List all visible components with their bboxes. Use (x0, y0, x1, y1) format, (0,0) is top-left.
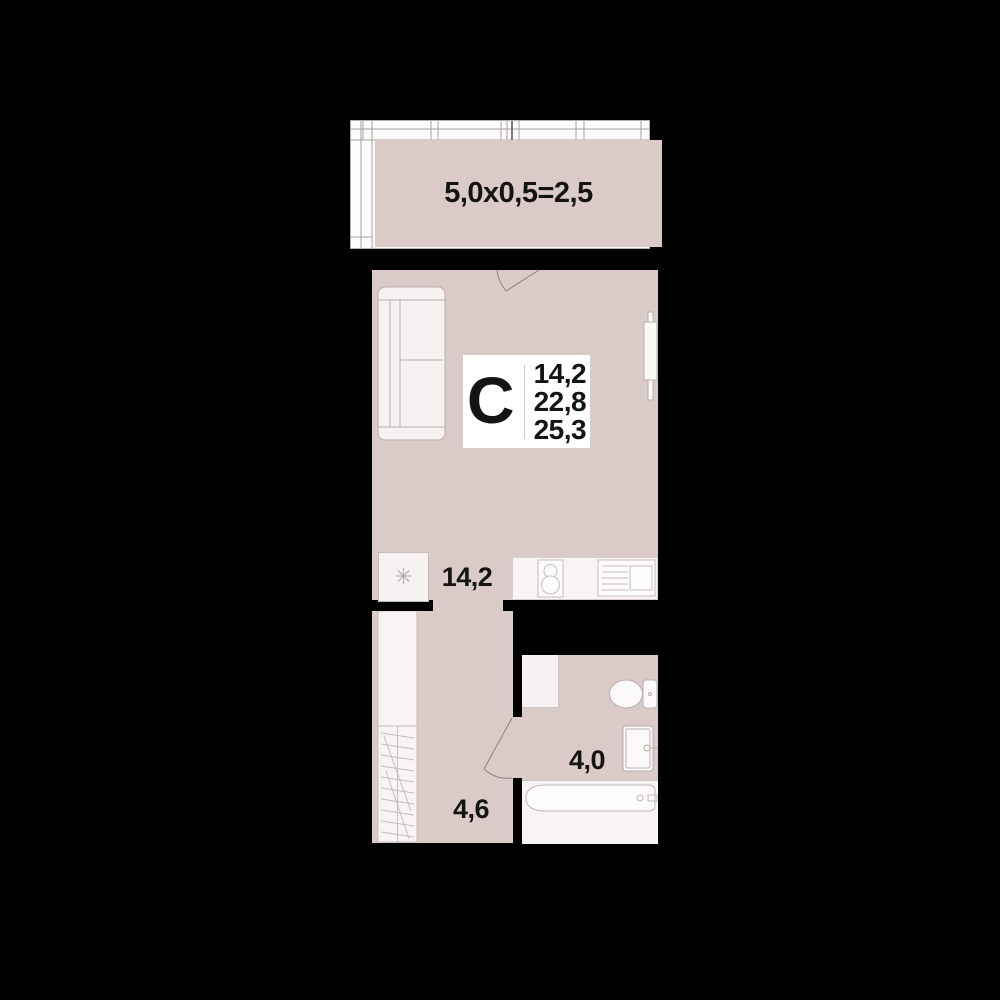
hallway: 4,6 (372, 611, 513, 843)
bathroom-door-opening (513, 717, 522, 778)
counter-fixtures (513, 558, 657, 599)
area-value-apartment: 22,8 (534, 388, 587, 416)
snowflake-icon: ✳ (394, 566, 412, 588)
area-value-living: 14,2 (534, 360, 587, 388)
balcony-floor: 5,0x0,5=2,5 (375, 140, 662, 247)
badge-area-values: 14,2 22,8 25,3 (534, 360, 587, 444)
badge-divider (524, 365, 525, 439)
area-value-total: 25,3 (534, 416, 587, 444)
bathroom: 4,0 (522, 655, 658, 843)
stove-icon (538, 560, 563, 597)
toilet-icon (610, 680, 658, 708)
washbasin-icon (623, 726, 658, 771)
floor-plan: 5,0x0,5=2,5 (0, 0, 1000, 1000)
bathtub-icon (526, 785, 657, 811)
balcony-area-label: 5,0x0,5=2,5 (444, 177, 593, 210)
sink-icon (598, 560, 655, 596)
fridge-icon: ✳ (378, 552, 429, 602)
bathroom-area-label: 4,0 (556, 745, 618, 776)
kitchen-area-label: 14,2 (427, 562, 507, 593)
hallway-area-label: 4,6 (440, 794, 502, 825)
main-room: С 14,2 22,8 25,3 ✳ 14,2 (372, 270, 658, 600)
bathroom-door-arc-icon (484, 718, 512, 778)
radiator-icon (644, 312, 657, 400)
kitchen-counter (512, 557, 658, 600)
room-type-letter: С (467, 367, 515, 433)
studio-badge: С 14,2 22,8 25,3 (463, 355, 590, 448)
sofa-icon (378, 287, 445, 440)
balcony-door-arc-icon (497, 270, 539, 291)
wardrobe-icon (378, 611, 417, 842)
